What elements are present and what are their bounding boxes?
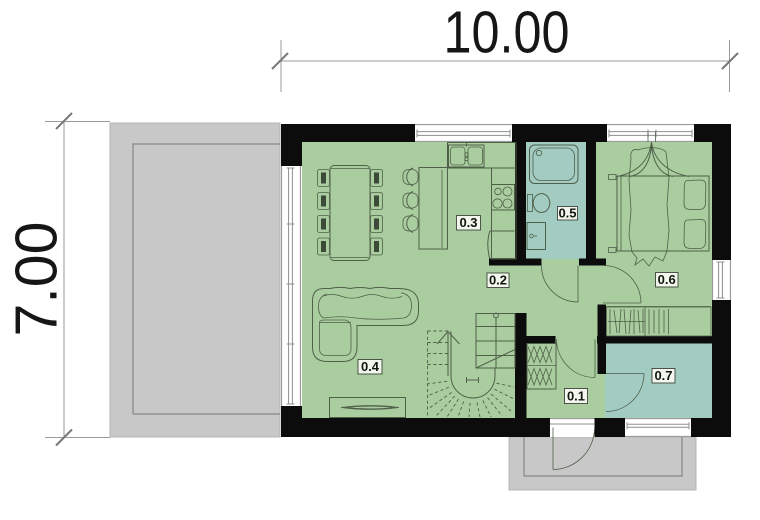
svg-text:0.1: 0.1 (567, 389, 585, 404)
svg-text:0.5: 0.5 (558, 206, 576, 221)
svg-text:0.6: 0.6 (658, 272, 676, 287)
svg-text:10.00: 10.00 (444, 0, 570, 66)
svg-text:0.3: 0.3 (459, 215, 477, 230)
svg-text:0.2: 0.2 (489, 273, 507, 288)
svg-text:0.7: 0.7 (654, 368, 672, 383)
svg-text:0.4: 0.4 (361, 359, 380, 374)
svg-text:7.00: 7.00 (4, 222, 70, 337)
